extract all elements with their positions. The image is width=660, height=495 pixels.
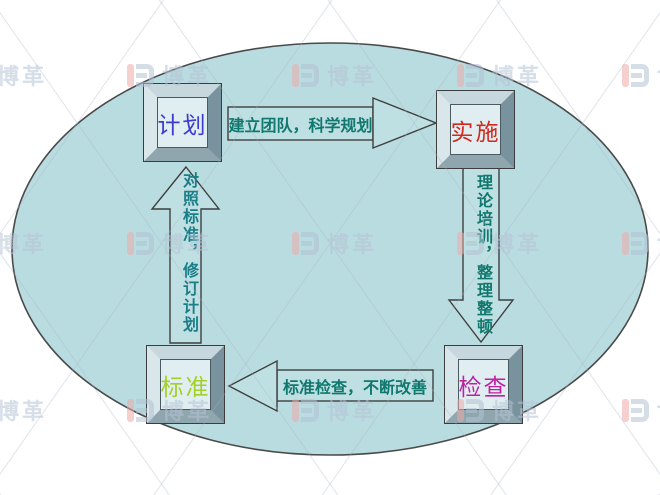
- node-do: 实施: [436, 90, 515, 169]
- arrow-do-to-check-label: 理论培训，整理整顿: [471, 174, 495, 336]
- node-check-label: 检查: [459, 368, 509, 402]
- node-check: 检查: [444, 345, 523, 424]
- node-standard-label: 标准: [161, 368, 211, 402]
- arrow-plan-to-do-label: 建立团队，科学规划: [228, 107, 373, 140]
- node-do-label: 实施: [451, 113, 501, 147]
- arrow-standard-to-plan-label: 对照标准，修订计划: [177, 172, 201, 334]
- pdca-cycle-diagram: 建立团队，科学规划 理论培训，整理整顿 标准检查，不断改善 对照标准，修订计划 …: [0, 0, 660, 495]
- node-plan-label: 计划: [158, 106, 208, 140]
- node-standard: 标准: [146, 345, 225, 424]
- arrow-check-to-standard-label: 标准检查，不断改善: [277, 370, 433, 401]
- node-plan: 计划: [143, 83, 222, 162]
- diagram-shapes: [0, 0, 660, 495]
